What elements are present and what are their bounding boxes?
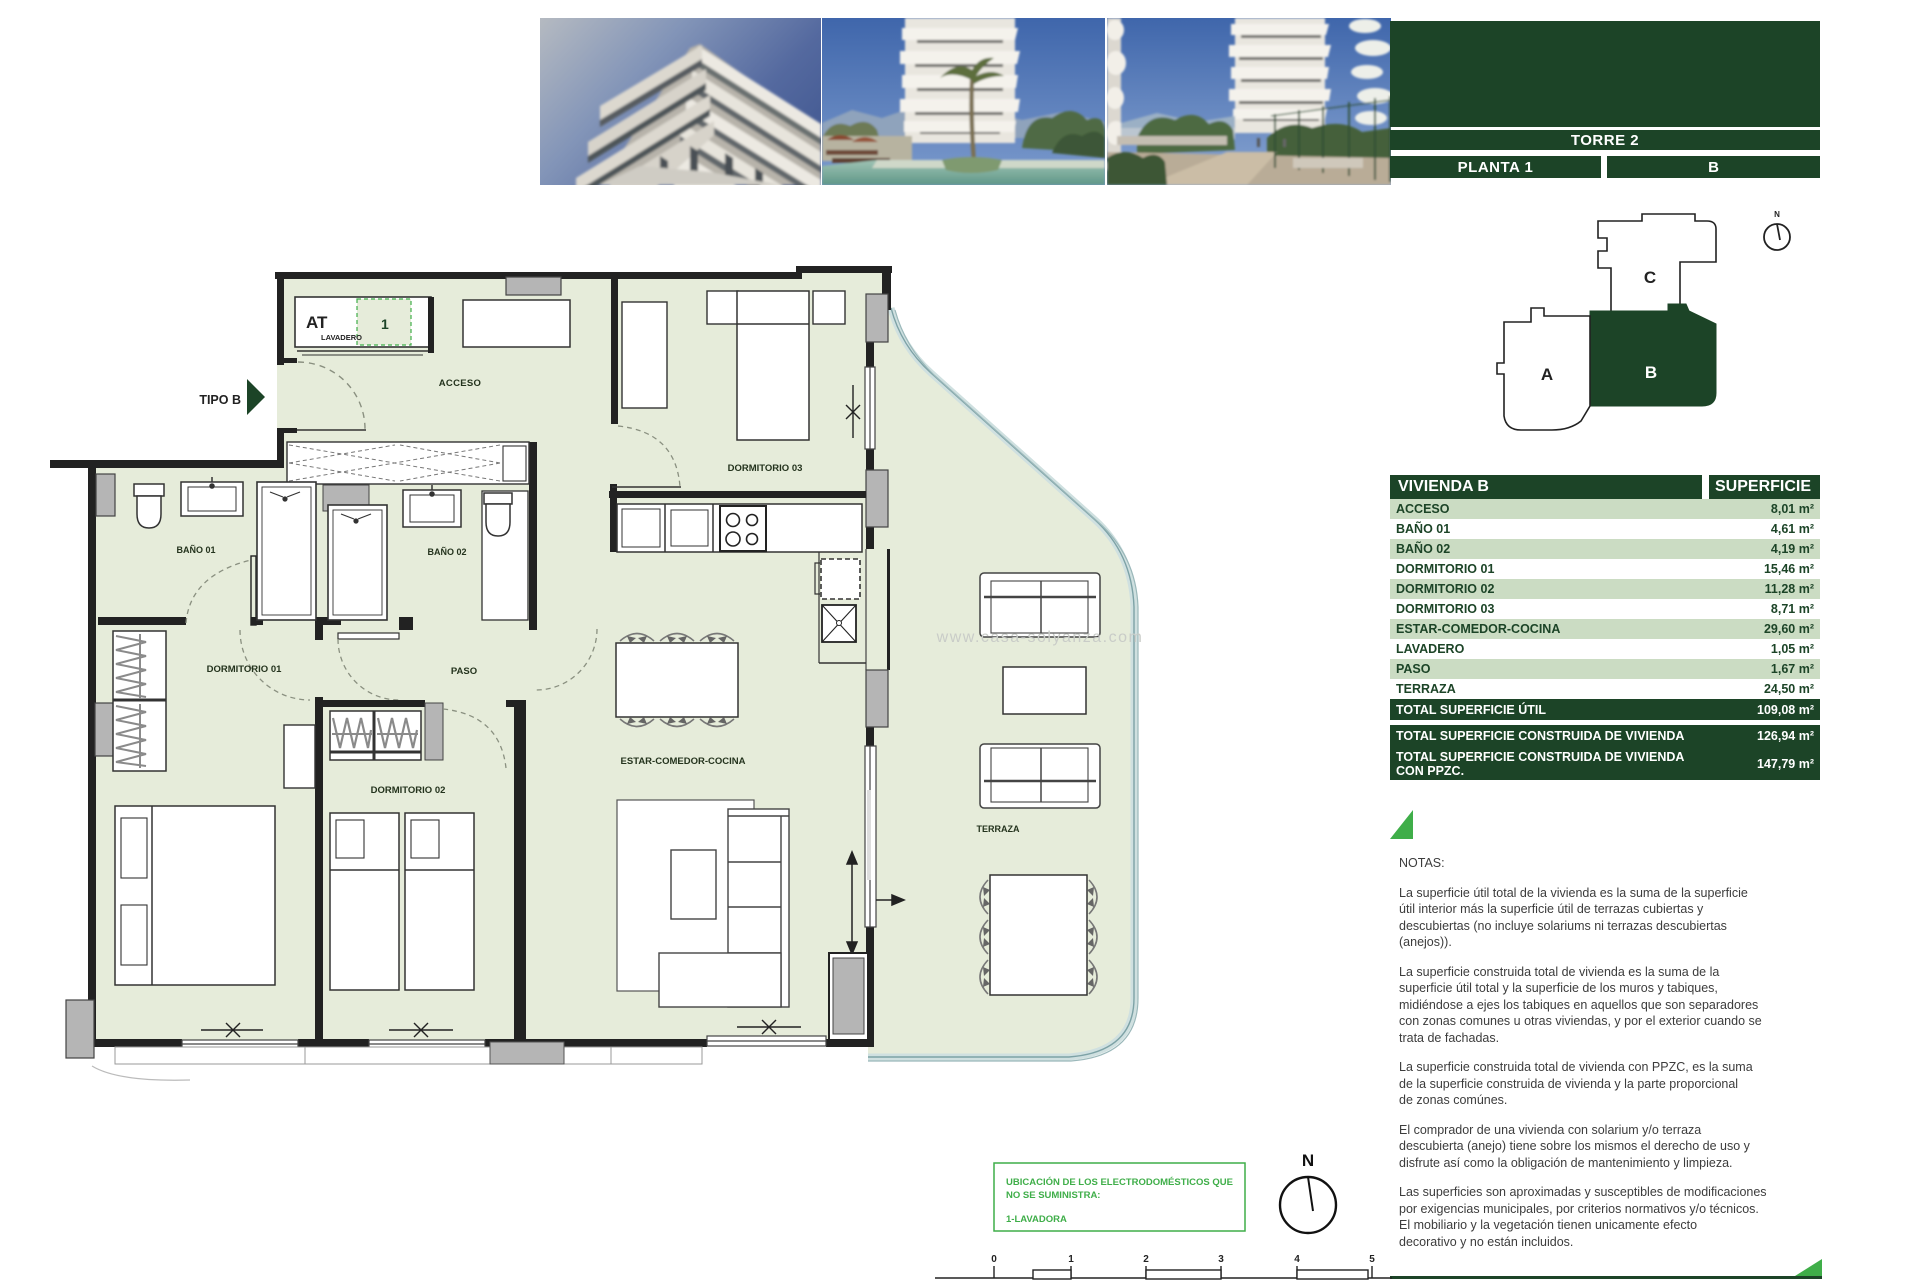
svg-text:AT: AT	[306, 313, 328, 332]
svg-text:1: 1	[381, 316, 389, 332]
svg-text:DORMITORIO 02: DORMITORIO 02	[371, 785, 446, 796]
svg-text:3: 3	[1218, 1254, 1224, 1265]
svg-text:ACCESO: ACCESO	[439, 378, 481, 389]
svg-text:2: 2	[1143, 1254, 1149, 1265]
svg-text:DORMITORIO 01: DORMITORIO 01	[207, 664, 282, 675]
svg-text:LAVADERO: LAVADERO	[321, 333, 362, 342]
svg-text:DORMITORIO 03: DORMITORIO 03	[728, 463, 803, 474]
svg-text:www.casa-solyanza.com: www.casa-solyanza.com	[936, 629, 1144, 646]
svg-text:TIPO B: TIPO B	[199, 393, 241, 407]
svg-text:N: N	[1302, 1151, 1314, 1170]
svg-text:ESTAR-COMEDOR-COCINA: ESTAR-COMEDOR-COCINA	[621, 756, 746, 767]
svg-text:UBICACIÓN DE LOS ELECTRODOMÉST: UBICACIÓN DE LOS ELECTRODOMÉSTICOS QUE	[1006, 1176, 1233, 1188]
svg-text:0: 0	[991, 1254, 997, 1265]
svg-text:TERRAZA: TERRAZA	[977, 824, 1020, 834]
svg-text:1: 1	[1068, 1254, 1074, 1265]
svg-text:1-LAVADORA: 1-LAVADORA	[1006, 1214, 1067, 1225]
svg-text:BAÑO 01: BAÑO 01	[176, 545, 215, 555]
svg-text:NO SE SUMINISTRA:: NO SE SUMINISTRA:	[1006, 1190, 1100, 1201]
svg-text:4: 4	[1294, 1254, 1300, 1265]
svg-text:PASO: PASO	[451, 666, 477, 677]
svg-text:5: 5	[1369, 1254, 1375, 1265]
svg-text:BAÑO 02: BAÑO 02	[427, 547, 466, 557]
